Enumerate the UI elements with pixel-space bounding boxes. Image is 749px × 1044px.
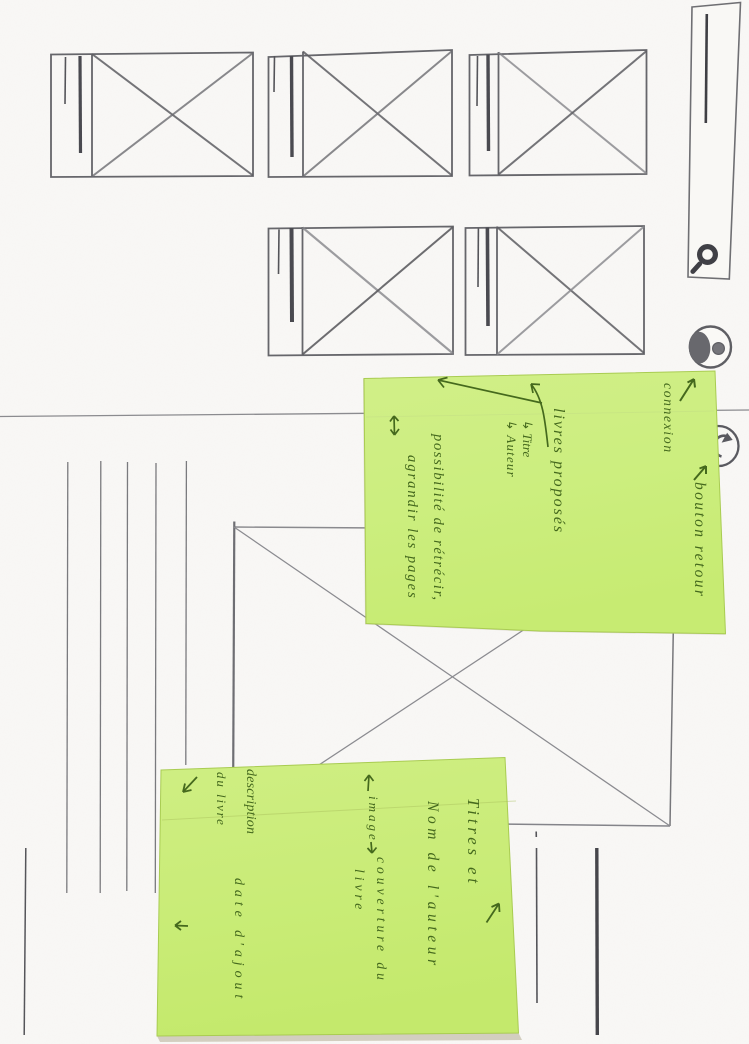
svg-text:couverture du: couverture du	[374, 857, 389, 984]
svg-text:connexion: connexion	[661, 383, 676, 454]
svg-text:Nom de l'auteur: Nom de l'auteur	[424, 800, 441, 970]
svg-text:agrandir les pages: agrandir les pages	[404, 455, 420, 600]
svg-text:livre: livre	[352, 869, 367, 913]
svg-text:↳ Auteur: ↳ Auteur	[504, 419, 519, 478]
svg-text:image: image	[366, 796, 381, 843]
svg-text:livres proposés: livres proposés	[550, 408, 567, 534]
svg-text:bouton retour: bouton retour	[691, 482, 708, 598]
svg-text:description: description	[243, 769, 258, 834]
svg-text:Titres et: Titres et	[464, 798, 483, 887]
svg-text:possibilité de rétrécir,: possibilité de rétrécir,	[430, 433, 446, 602]
svg-text:↳ Titre: ↳ Titre	[520, 419, 535, 457]
svg-text:date d'ajout: date d'ajout	[231, 878, 246, 1003]
svg-text:du livre: du livre	[214, 772, 229, 827]
